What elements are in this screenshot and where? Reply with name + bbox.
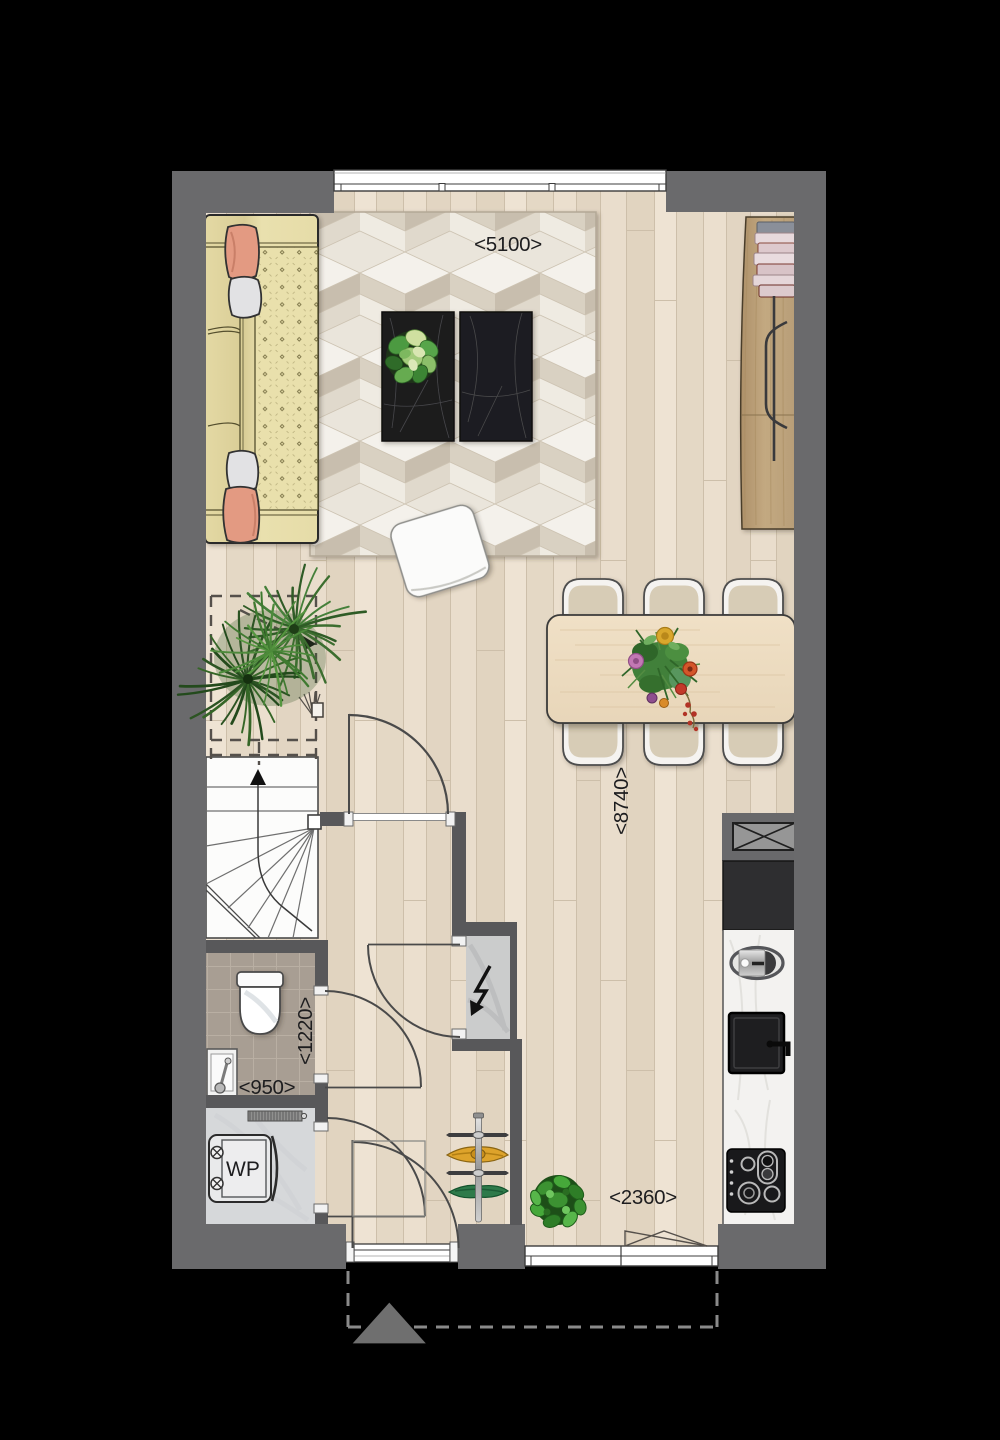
svg-text:<8740>: <8740>	[610, 767, 633, 835]
svg-text:WP: WP	[226, 1158, 260, 1181]
svg-text:<1220>: <1220>	[294, 997, 317, 1065]
svg-text:<5100>: <5100>	[474, 233, 542, 256]
svg-text:<950>: <950>	[239, 1076, 296, 1099]
svg-text:<2360>: <2360>	[609, 1186, 677, 1209]
